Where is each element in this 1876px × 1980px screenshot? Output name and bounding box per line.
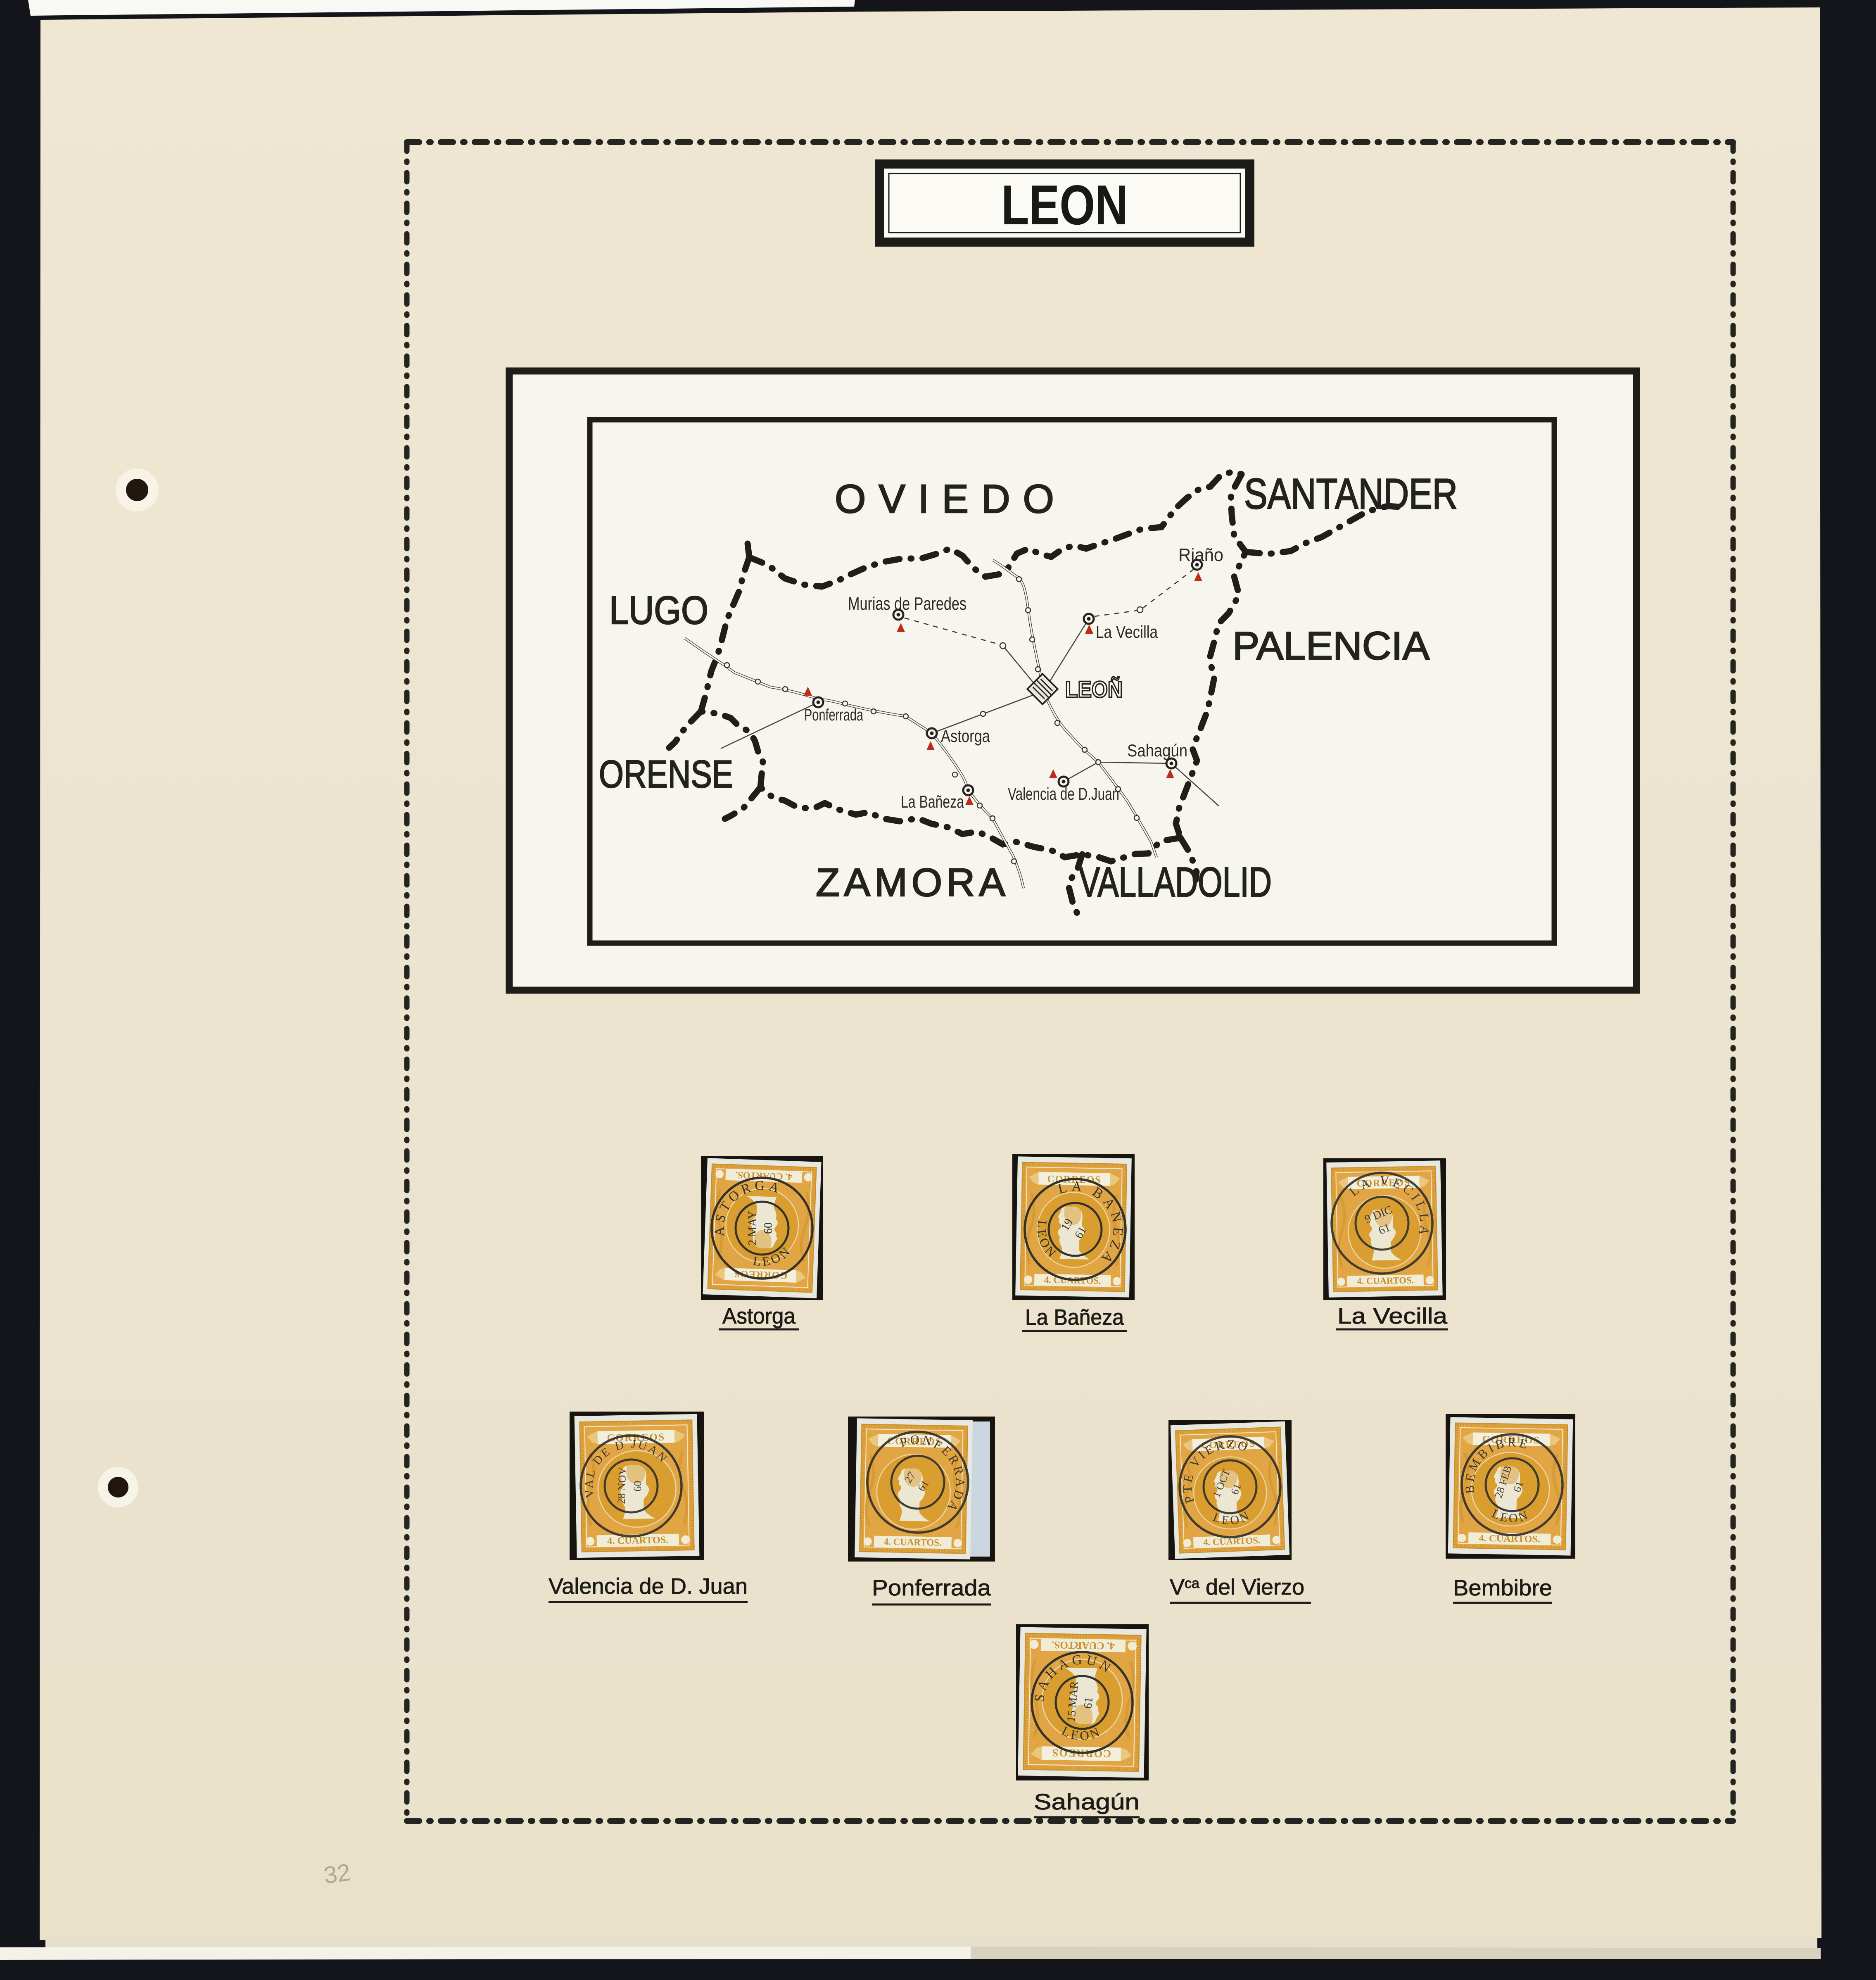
- svg-text:Valencia de D.Juan: Valencia de D.Juan: [1008, 784, 1119, 803]
- svg-text:LEON: LEON: [1001, 174, 1128, 236]
- svg-text:La Vecilla: La Vecilla: [1096, 622, 1158, 642]
- svg-text:Ponferrada: Ponferrada: [872, 1576, 991, 1600]
- svg-text:La Bañeza: La Bañeza: [901, 792, 964, 811]
- svg-text:28 NOV: 28 NOV: [615, 1467, 628, 1504]
- svg-text:LUGO: LUGO: [609, 588, 708, 632]
- svg-text:VALLADOLID: VALLADOLID: [1079, 859, 1272, 906]
- svg-text:Astorga: Astorga: [941, 726, 990, 746]
- svg-text:ORENSE: ORENSE: [599, 752, 733, 796]
- svg-text:Sahagún: Sahagún: [1127, 741, 1187, 760]
- svg-text:2 MAY: 2 MAY: [746, 1211, 759, 1246]
- svg-text:La Vecilla: La Vecilla: [1337, 1304, 1448, 1329]
- svg-text:Astorga: Astorga: [722, 1304, 796, 1329]
- svg-text:Riaño: Riaño: [1178, 545, 1223, 565]
- svg-text:La Bañeza: La Bañeza: [1025, 1305, 1124, 1330]
- svg-text:61: 61: [1082, 1697, 1095, 1709]
- svg-text:Murias de Paredes: Murias de Paredes: [848, 594, 966, 614]
- svg-text:SANTANDER: SANTANDER: [1244, 470, 1458, 518]
- svg-text:32: 32: [322, 1859, 352, 1889]
- svg-text:PALENCIA: PALENCIA: [1232, 624, 1430, 668]
- svg-text:60: 60: [762, 1222, 775, 1234]
- svg-text:LEOÑ: LEOÑ: [1065, 676, 1123, 702]
- svg-text:Bembibre: Bembibre: [1453, 1576, 1552, 1600]
- svg-text:Valencia de D. Juan: Valencia de D. Juan: [549, 1574, 748, 1599]
- svg-text:Ponferrada: Ponferrada: [804, 706, 864, 724]
- svg-text:60: 60: [632, 1481, 644, 1492]
- svg-text:Sahagún: Sahagún: [1034, 1790, 1140, 1814]
